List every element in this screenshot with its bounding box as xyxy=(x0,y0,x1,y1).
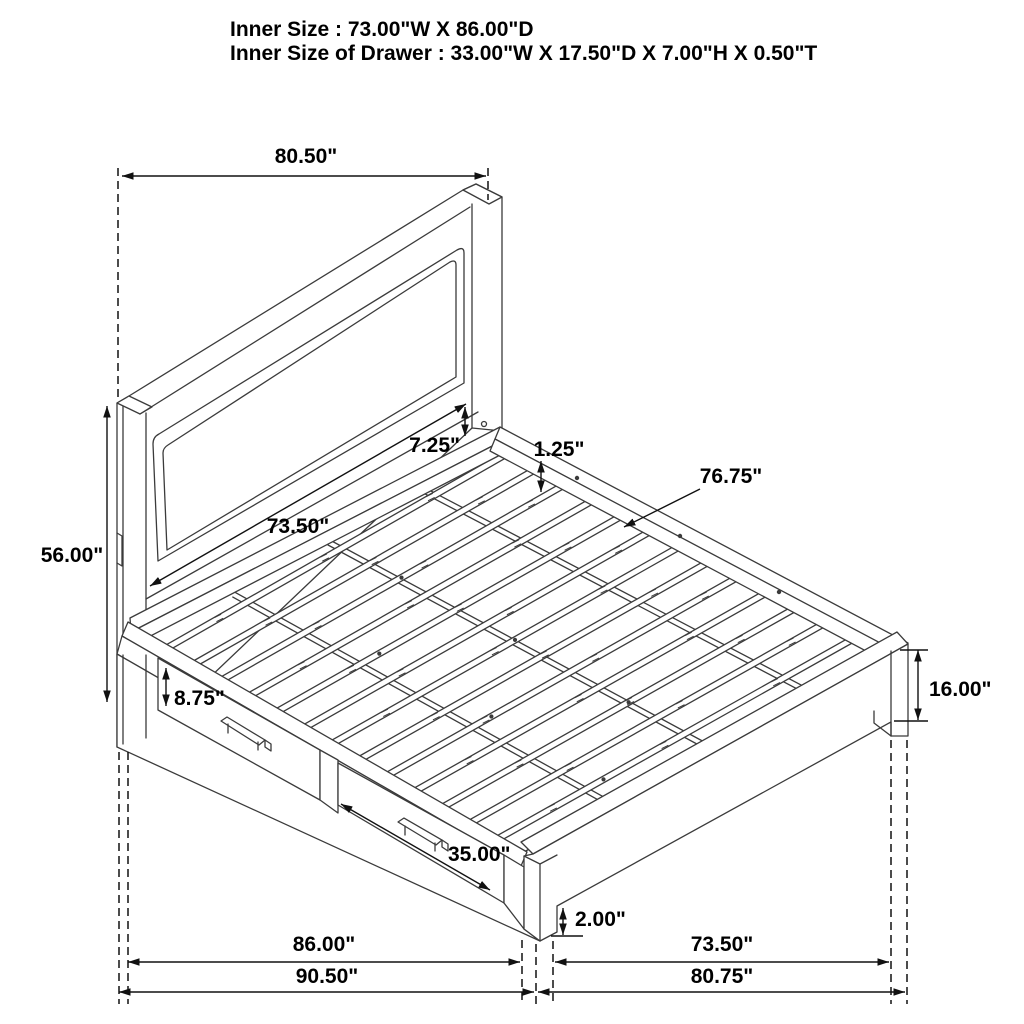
dim-side-inner-length: 86.00" xyxy=(293,933,356,956)
dim-side-outer-length: 90.50" xyxy=(296,965,359,988)
dim-foot-inner-width: 73.50" xyxy=(691,933,754,956)
dim-panel-inset: 7.25" xyxy=(409,434,460,457)
footboard xyxy=(521,632,908,941)
dim-footboard-height: 16.00" xyxy=(929,678,992,701)
dim-foot-outer-width: 80.75" xyxy=(691,965,754,988)
header-line-2: Inner Size of Drawer : 33.00"W X 17.50"D… xyxy=(230,42,817,65)
dim-drawer-front-width: 35.00" xyxy=(448,843,511,866)
bed-dimension-diagram: Inner Size : 73.00"W X 86.00"D Inner Siz… xyxy=(0,0,1024,1024)
dim-ground-clearance: 2.00" xyxy=(575,908,626,931)
dim-drawer-opening-height: 8.75" xyxy=(174,687,225,710)
right-side-rail xyxy=(495,427,908,656)
dim-headboard-width: 80.50" xyxy=(275,145,338,168)
bed-dimension-diagram-page: Inner Size : 73.00"W X 86.00"D Inner Siz… xyxy=(0,0,1024,1024)
header-line-1: Inner Size : 73.00"W X 86.00"D xyxy=(230,18,534,41)
dim-rail-thickness: 1.25" xyxy=(534,438,585,461)
dim-slat-length: 76.75" xyxy=(700,465,763,488)
dim-headboard-panel-width: 73.50" xyxy=(267,515,330,538)
dim-headboard-height: 56.00" xyxy=(41,544,104,567)
